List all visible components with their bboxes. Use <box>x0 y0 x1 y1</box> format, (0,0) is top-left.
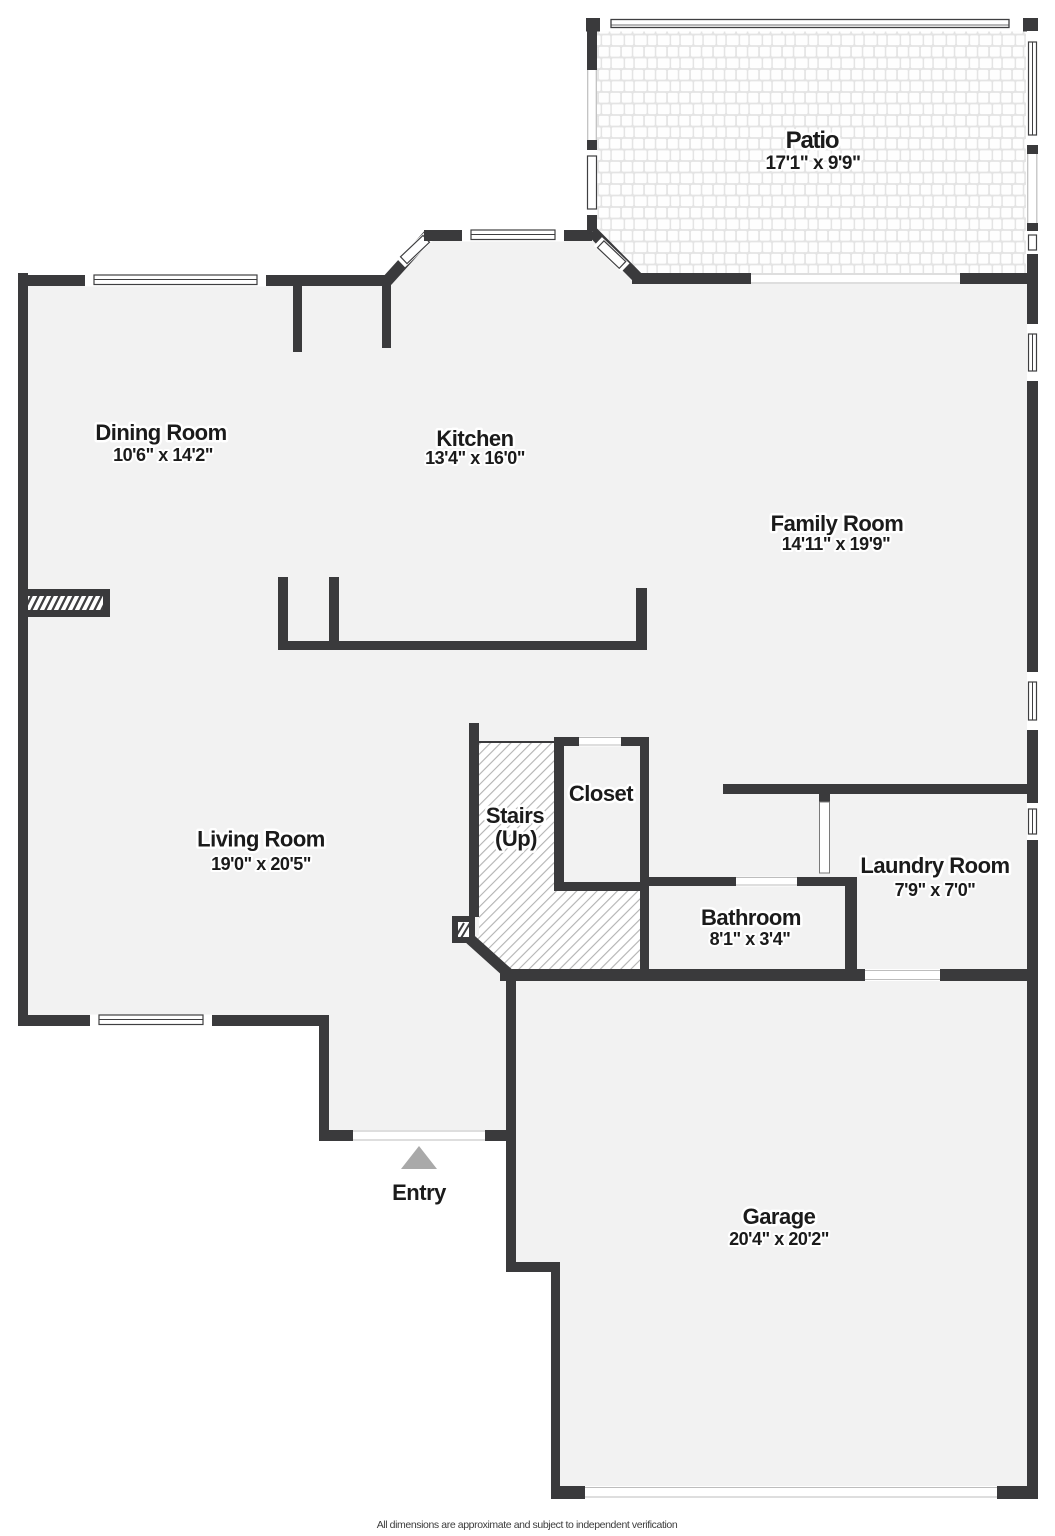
svg-text:Entry: Entry <box>392 1180 447 1205</box>
svg-text:17'1" x 9'9": 17'1" x 9'9" <box>765 153 860 174</box>
svg-text:All dimensions are approximate: All dimensions are approximate and subje… <box>377 1519 678 1531</box>
svg-text:Garage: Garage <box>743 1204 816 1229</box>
svg-text:Laundry Room: Laundry Room <box>860 853 1009 878</box>
svg-text:Closet: Closet <box>569 781 634 806</box>
svg-text:13'4" x 16'0": 13'4" x 16'0" <box>425 448 525 468</box>
svg-text:8'1" x 3'4": 8'1" x 3'4" <box>710 929 791 949</box>
svg-text:Patio: Patio <box>786 127 839 154</box>
svg-text:10'6" x 14'2": 10'6" x 14'2" <box>113 445 213 465</box>
svg-text:Stairs: Stairs <box>486 803 544 828</box>
svg-text:Living Room: Living Room <box>197 827 325 852</box>
svg-text:Bathroom: Bathroom <box>701 905 801 930</box>
svg-text:(Up): (Up) <box>495 826 537 851</box>
svg-text:14'11" x 19'9": 14'11" x 19'9" <box>782 534 890 554</box>
svg-text:19'0" x 20'5": 19'0" x 20'5" <box>211 854 311 874</box>
svg-text:Dining Room: Dining Room <box>95 420 226 445</box>
svg-text:7'9" x 7'0": 7'9" x 7'0" <box>895 880 976 900</box>
svg-text:Family Room: Family Room <box>771 511 904 536</box>
svg-text:20'4" x 20'2": 20'4" x 20'2" <box>729 1229 829 1249</box>
